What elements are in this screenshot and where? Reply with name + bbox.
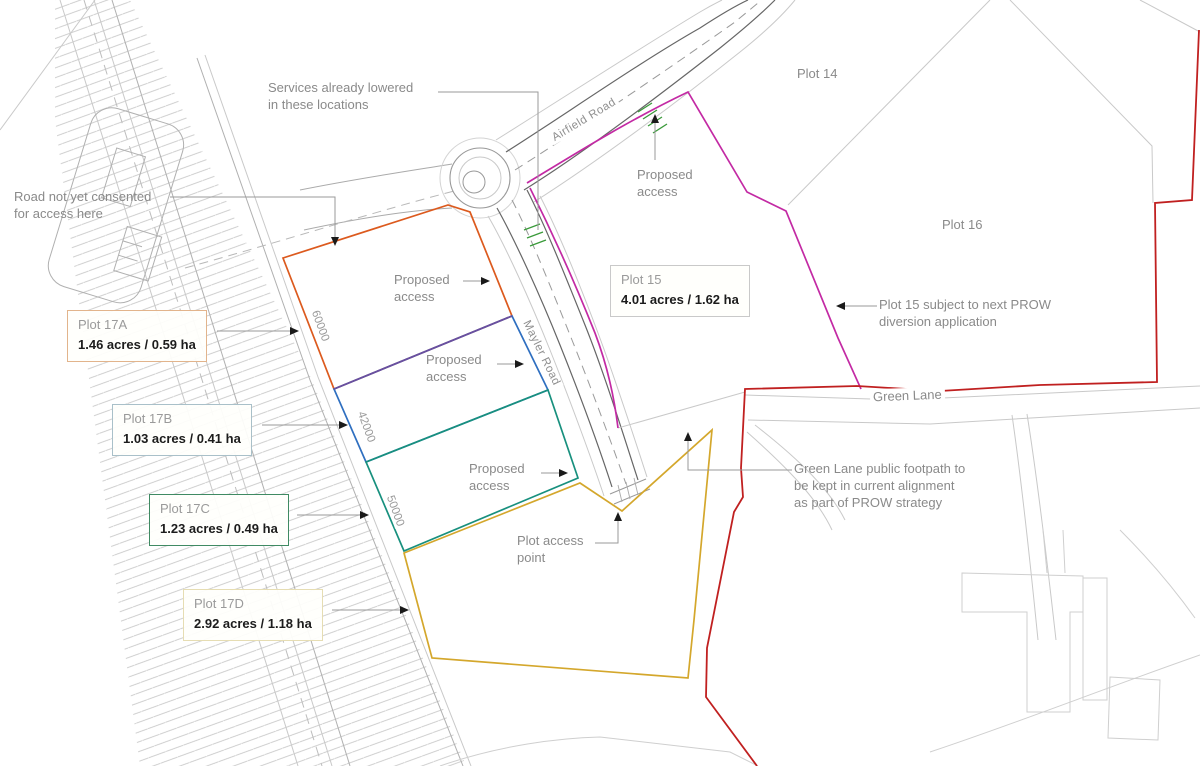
note-prow-diversion: Plot 15 subject to next PROW diversion a… (879, 296, 1051, 330)
note-line: access (469, 477, 525, 494)
note-line: Road not yet consented (14, 188, 151, 205)
note-footpath: Green Lane public footpath to be kept in… (794, 460, 965, 511)
note-plot-access-point: Plot access point (517, 532, 583, 566)
note-road-consent: Road not yet consented for access here (14, 188, 151, 222)
plot-15-label-box: Plot 15 4.01 acres / 1.62 ha (610, 265, 750, 317)
plot-14-label: Plot 14 (797, 66, 837, 81)
plot-17a-label-box: Plot 17A 1.46 acres / 0.59 ha (67, 310, 207, 362)
note-line: Plot 15 subject to next PROW (879, 296, 1051, 313)
plot-area: 1.03 acres / 0.41 ha (123, 429, 241, 449)
note-proposed-access-2: Proposed access (394, 271, 450, 305)
plot-17c-label-box: Plot 17C 1.23 acres / 0.49 ha (149, 494, 289, 546)
note-proposed-access-1: Proposed access (637, 166, 693, 200)
mayler-road (488, 190, 650, 504)
plot-17d-label-box: Plot 17D 2.92 acres / 1.18 ha (183, 589, 323, 641)
note-proposed-access-4: Proposed access (469, 460, 525, 494)
note-line: access (394, 288, 450, 305)
note-services: Services already lowered in these locati… (268, 79, 413, 113)
plot-17b-label-box: Plot 17B 1.03 acres / 0.41 ha (112, 404, 252, 456)
plot-area: 2.92 acres / 1.18 ha (194, 614, 312, 634)
hatched-road-corridor (55, 0, 466, 766)
note-line: Plot access (517, 532, 583, 549)
note-line: access (426, 368, 482, 385)
note-line: Green Lane public footpath to (794, 460, 965, 477)
green-lane-name: Green Lane (870, 387, 945, 405)
plot-title: Plot 17C (160, 499, 278, 519)
note-line: as part of PROW strategy (794, 494, 965, 511)
note-line: Proposed (637, 166, 693, 183)
note-line: point (517, 549, 583, 566)
note-line: access (637, 183, 693, 200)
plot-title: Plot 17D (194, 594, 312, 614)
note-line: for access here (14, 205, 151, 222)
plot-title: Plot 17B (123, 409, 241, 429)
green-lane-lines (745, 386, 1200, 640)
note-proposed-access-3: Proposed access (426, 351, 482, 385)
plot-title: Plot 17A (78, 315, 196, 335)
plot-area: 1.23 acres / 0.49 ha (160, 519, 278, 539)
note-line: Proposed (469, 460, 525, 477)
note-line: diversion application (879, 313, 1051, 330)
site-plan: Services already lowered in these locati… (0, 0, 1200, 766)
plot-area: 4.01 acres / 1.62 ha (621, 290, 739, 310)
plot-15-boundary (527, 92, 861, 428)
note-line: Services already lowered (268, 79, 413, 96)
note-line: Proposed (394, 271, 450, 288)
note-line: in these locations (268, 96, 413, 113)
plot-title: Plot 15 (621, 270, 739, 290)
plot-area: 1.46 acres / 0.59 ha (78, 335, 196, 355)
plot-16-label: Plot 16 (942, 217, 982, 232)
note-line: Proposed (426, 351, 482, 368)
field-boundaries (618, 0, 1200, 428)
plot-17ab-shared-edge (334, 316, 512, 389)
note-line: be kept in current alignment (794, 477, 965, 494)
